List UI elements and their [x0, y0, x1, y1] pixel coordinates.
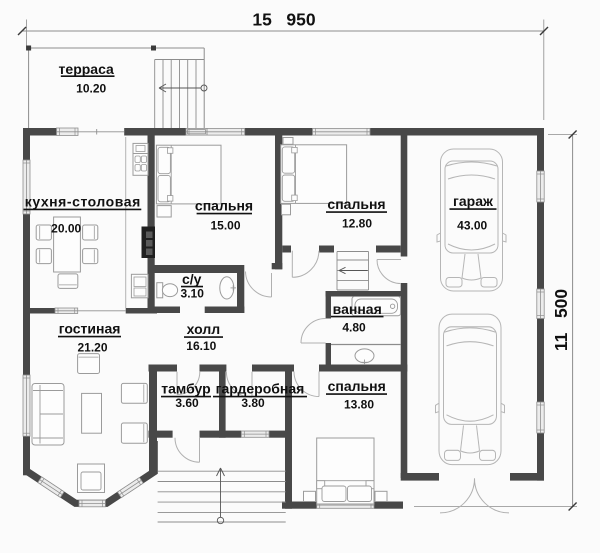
svg-text:холл: холл	[187, 321, 220, 337]
svg-text:3.80: 3.80	[241, 396, 265, 410]
svg-text:3.10: 3.10	[181, 287, 205, 301]
svg-text:10.20: 10.20	[76, 81, 106, 95]
svg-text:11 500: 11 500	[551, 289, 571, 352]
svg-text:спальня: спальня	[195, 198, 253, 214]
svg-text:кухня-столовая: кухня-столовая	[25, 194, 141, 210]
svg-text:гардеробная: гардеробная	[216, 381, 305, 397]
svg-text:3.60: 3.60	[175, 396, 199, 410]
svg-text:терраса: терраса	[59, 61, 114, 77]
svg-text:15 950: 15 950	[252, 10, 316, 30]
svg-text:спальня: спальня	[327, 196, 385, 212]
svg-text:20.00: 20.00	[51, 222, 81, 236]
svg-text:ванная: ванная	[333, 301, 382, 317]
svg-text:21.20: 21.20	[77, 341, 107, 355]
svg-text:4.80: 4.80	[342, 321, 366, 335]
svg-text:15.00: 15.00	[210, 219, 240, 233]
svg-text:43.00: 43.00	[457, 219, 487, 233]
svg-text:12.80: 12.80	[342, 217, 372, 231]
svg-text:гараж: гараж	[453, 193, 494, 209]
svg-text:13.80: 13.80	[344, 398, 374, 412]
svg-text:тамбур: тамбур	[161, 381, 210, 397]
svg-text:16.10: 16.10	[186, 339, 216, 353]
svg-text:гостиная: гостиная	[59, 321, 121, 337]
svg-text:спальня: спальня	[328, 378, 386, 394]
svg-text:с/у: с/у	[182, 271, 202, 287]
